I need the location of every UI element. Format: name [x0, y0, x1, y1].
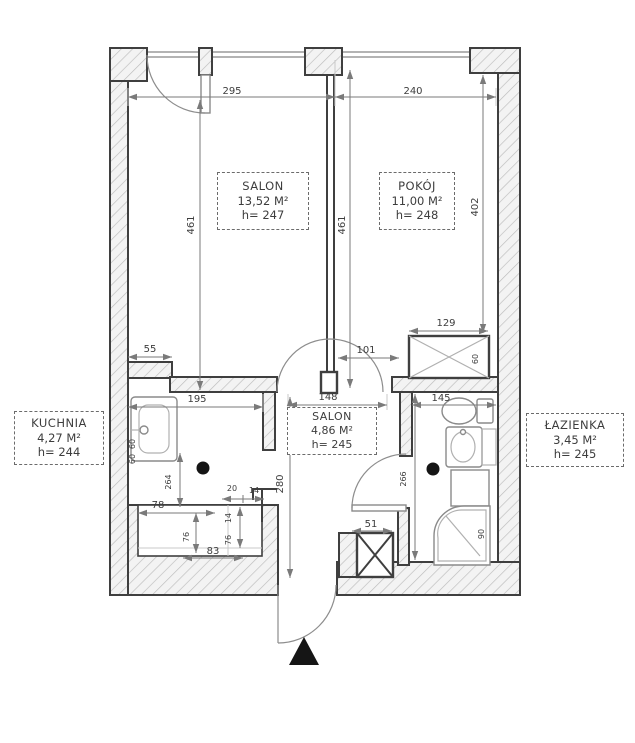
room-label-hall: SALON 4,86 M² h= 245 — [287, 407, 377, 455]
dim-top-pokoj: 240 — [403, 86, 422, 97]
room-name: SALON — [222, 179, 304, 194]
salon-kitchen-wall — [170, 377, 277, 392]
dim-step-14: 14 — [249, 486, 259, 495]
top-left-corner — [110, 48, 147, 81]
room-name: KUCHNIA — [19, 416, 99, 431]
dim-pokoj-door: 101 — [356, 345, 375, 356]
room-label-pokoj: POKÓJ 11,00 M² h= 248 — [379, 172, 455, 230]
floor-plan-drawing: 295 240 461 461 402 55 195 148 145 101 1… — [0, 0, 635, 743]
room-name: POKÓJ — [384, 179, 450, 194]
dim-step-20: 20 — [227, 484, 237, 493]
entrance-door — [278, 585, 336, 643]
dim-step-14b: 14 — [224, 513, 233, 523]
dim-salon-depth: 461 — [186, 215, 197, 234]
room-label-kuchnia: KUCHNIA 4,27 M² h= 244 — [14, 411, 104, 465]
shaft-box — [357, 533, 393, 577]
room-label-salon: SALON 13,52 M² h= 247 — [217, 172, 309, 230]
dim-bathroom-depth: 266 — [399, 471, 408, 486]
dim-recess-top: 78 — [152, 500, 165, 511]
dim-kitchen-stub: 55 — [144, 344, 157, 355]
dim-kitchen-depth: 264 — [164, 474, 173, 489]
top-middle-pier — [305, 48, 342, 75]
column-dot-kitchen — [197, 462, 210, 475]
bathroom-left-wall-lower — [398, 508, 409, 565]
dim-step-76: 76 — [224, 535, 233, 545]
dim-kitchen-width: 195 — [187, 394, 206, 405]
dim-top-salon: 295 — [222, 86, 241, 97]
left-wall — [110, 48, 128, 595]
balcony-door-jamb — [199, 48, 212, 75]
dim-shaft-width: 51 — [365, 519, 378, 530]
shaft-strip — [339, 533, 357, 577]
room-area: 11,00 M² — [384, 194, 450, 209]
partition-foot — [321, 372, 337, 393]
kitchen-hall-wall — [263, 392, 275, 450]
column-dot-bathroom — [427, 463, 440, 476]
dim-right-side: 402 — [470, 197, 481, 216]
kitchen-stub-wall — [128, 362, 172, 378]
central-partition — [327, 75, 334, 372]
washing-machine — [451, 470, 489, 506]
room-area: 3,45 M² — [531, 433, 619, 448]
washbasin — [446, 427, 496, 467]
dim-wardrobe-width: 129 — [436, 318, 455, 329]
dim-sink-60b: 60 — [128, 454, 137, 464]
floor-plan-page: 295 240 461 461 402 55 195 148 145 101 1… — [0, 0, 635, 743]
dim-shower-90: 90 — [477, 529, 486, 539]
room-area: 13,52 M² — [222, 194, 304, 209]
bathroom-top-wall — [392, 377, 498, 392]
room-height: h= 244 — [19, 445, 99, 460]
room-height: h= 247 — [222, 208, 304, 223]
room-area: 4,86 M² — [292, 424, 372, 438]
room-name: SALON — [292, 410, 372, 424]
bathroom-left-wall-upper — [400, 392, 412, 456]
room-height: h= 245 — [531, 447, 619, 462]
dim-sink-60a: 60 — [128, 439, 137, 449]
dim-bathroom-width: 145 — [431, 393, 450, 404]
dim-recess-side: 76 — [182, 532, 191, 542]
dim-hall-depth: 280 — [275, 474, 286, 493]
dim-recess-bottom: 83 — [207, 546, 220, 557]
room-label-lazienka: ŁAZIENKA 3,45 M² h= 245 — [526, 413, 624, 467]
right-wall — [498, 73, 520, 595]
dim-hall-width: 148 — [318, 392, 337, 403]
room-height: h= 245 — [292, 438, 372, 452]
dim-wardrobe-depth: 60 — [471, 354, 480, 364]
dimension-labels: 295 240 461 461 402 55 195 148 145 101 1… — [128, 86, 486, 557]
room-height: h= 248 — [384, 208, 450, 223]
room-area: 4,27 M² — [19, 431, 99, 446]
room-name: ŁAZIENKA — [531, 418, 619, 433]
dim-pokoj-depth: 461 — [337, 215, 348, 234]
bathroom-door — [352, 454, 406, 511]
